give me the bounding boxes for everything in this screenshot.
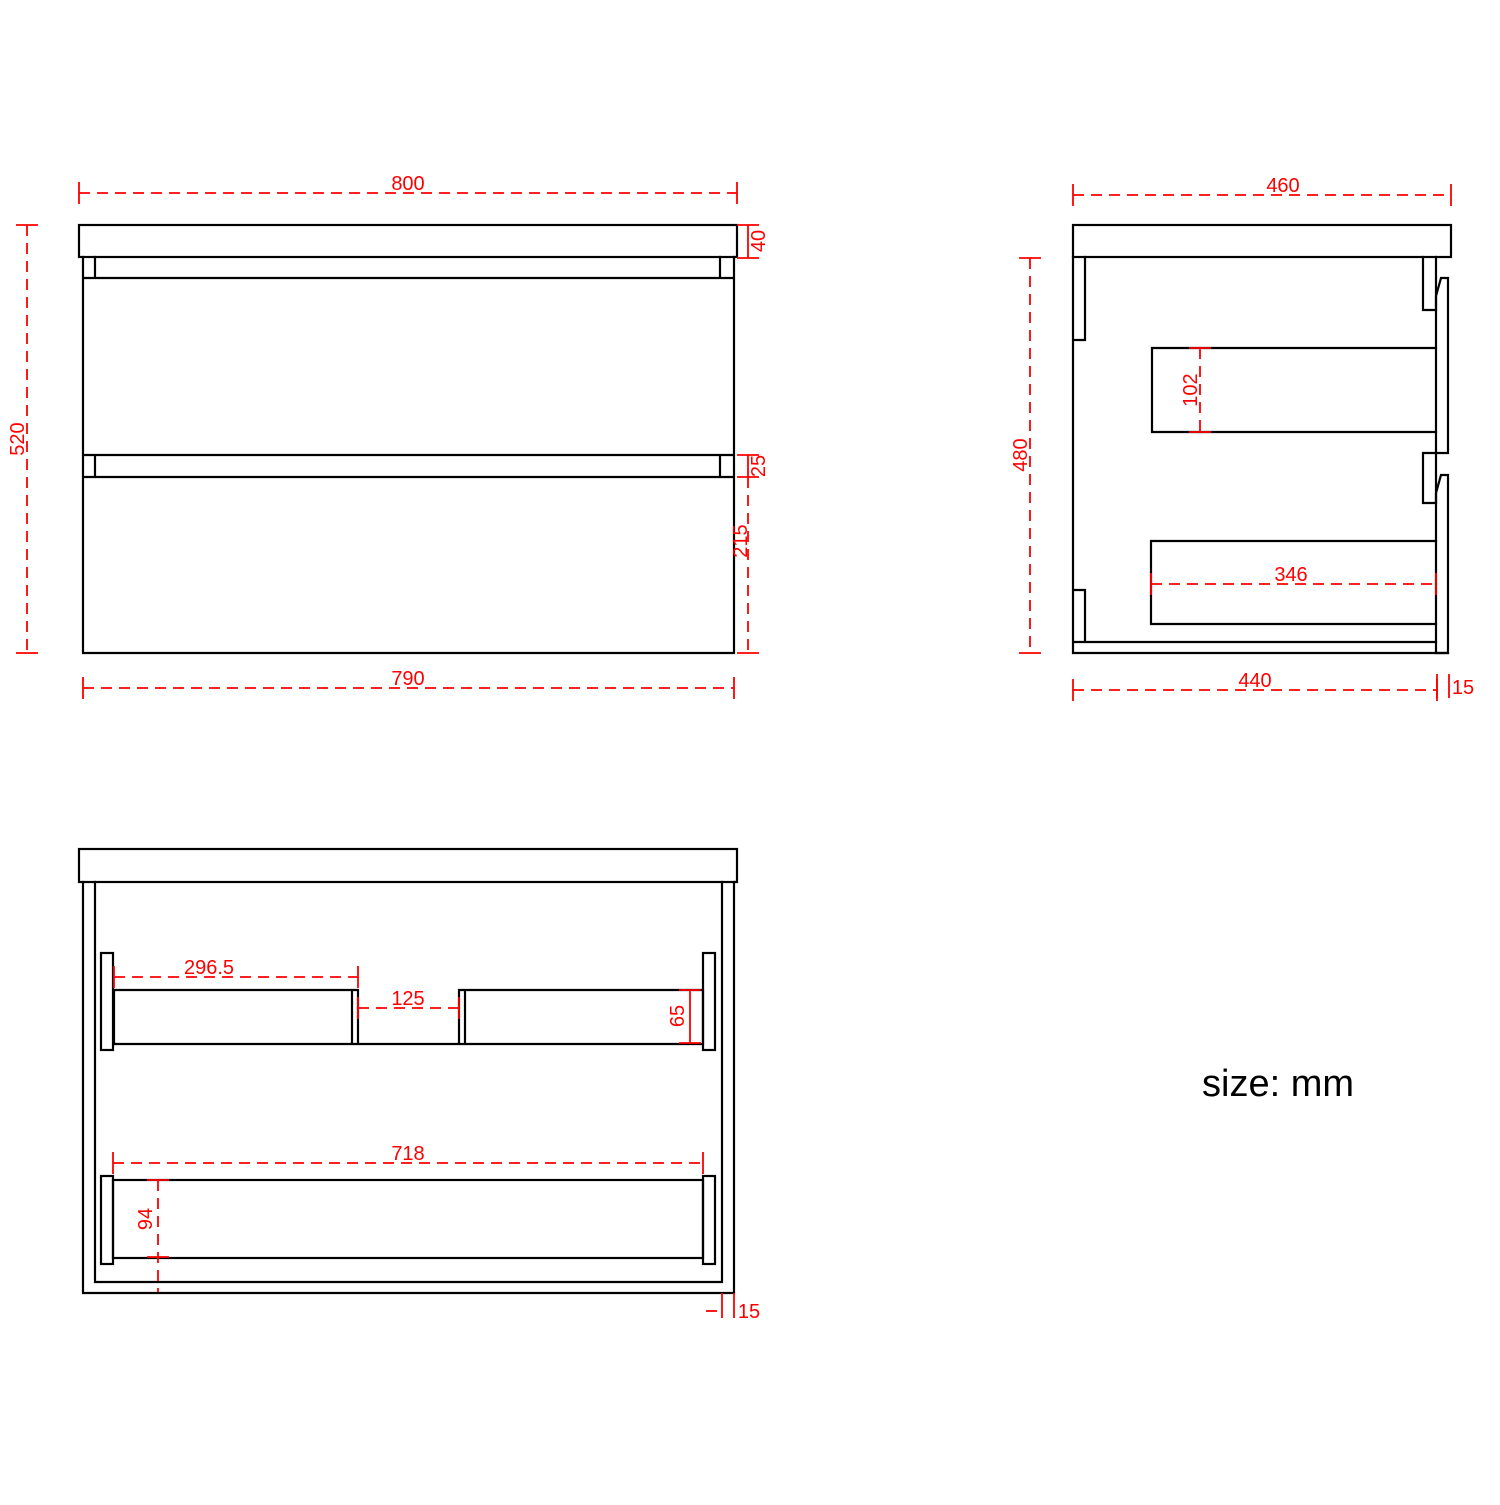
dim-label-bottom-plumbing-gap: 125 — [391, 988, 424, 1010]
dim-side-cabinet-height: 480 — [1010, 258, 1041, 653]
dim-label-front-cabinet-width: 790 — [391, 668, 424, 690]
units-note: size: mm — [1202, 1063, 1354, 1105]
dim-side-drawer-box-depth: 346 — [1151, 564, 1436, 595]
dim-bottom-panel-thickness: 15 — [706, 1293, 760, 1323]
side-view: 460 480 102 346 440 15 — [1010, 175, 1474, 701]
drawing-sheet: 800 520 40 25 215 790 — [0, 0, 1500, 1500]
dim-label-side-drawer-box-side-height: 102 — [1180, 373, 1202, 406]
side-countertop — [1073, 225, 1451, 257]
dim-side-drawer-box-side-height: 102 — [1180, 348, 1211, 432]
dim-side-front-panel-thickness: 15 — [1437, 674, 1474, 699]
bottom-runner-block-lower-left — [101, 1176, 113, 1264]
dim-label-front-top-thickness: 40 — [748, 230, 770, 252]
side-drawer-front-lower — [1436, 475, 1448, 653]
bottom-view: 296.5 125 65 718 94 15 — [79, 849, 760, 1323]
dim-side-cabinet-depth: 440 — [1073, 670, 1437, 701]
side-drawer-front-upper — [1436, 278, 1448, 453]
dim-label-bottom-back-rail-depth: 65 — [667, 1005, 689, 1027]
bottom-runner-block-upper-left — [101, 953, 113, 1050]
front-cabinet-outline — [83, 257, 734, 653]
bottom-back-rail-lower — [113, 1180, 703, 1258]
dim-label-front-overall-width: 800 — [391, 173, 424, 195]
dim-label-front-lower-drawer-height: 215 — [730, 524, 752, 557]
dim-front-top-thickness: 40 — [737, 225, 770, 258]
dim-label-side-cabinet-height: 480 — [1010, 438, 1032, 471]
dim-front-overall-width: 800 — [79, 173, 737, 204]
dim-label-side-front-panel-thickness: 15 — [1452, 677, 1474, 699]
side-cabinet-outline — [1073, 257, 1448, 653]
bottom-runner-block-lower-right — [703, 1176, 715, 1264]
front-view: 800 520 40 25 215 790 — [7, 173, 770, 699]
dim-bottom-back-rail-depth: 65 — [667, 990, 701, 1043]
bottom-cabinet-walls — [83, 882, 734, 1293]
dim-label-front-overall-height: 520 — [7, 422, 29, 455]
dim-bottom-lower-rail-width: 718 — [113, 1143, 703, 1174]
dim-front-overall-height: 520 — [7, 225, 38, 653]
technical-drawing: 800 520 40 25 215 790 — [0, 0, 1500, 1500]
front-countertop — [79, 225, 737, 257]
dim-side-top-depth: 460 — [1073, 175, 1451, 206]
dim-label-side-top-depth: 460 — [1266, 175, 1299, 197]
dim-label-bottom-panel-thickness: 15 — [738, 1301, 760, 1323]
dim-front-drawer-gap: 25 — [737, 455, 770, 477]
bottom-countertop-edge — [79, 849, 737, 882]
bottom-runner-block-upper-right — [703, 953, 715, 1050]
dim-bottom-left-rail-width: 296.5 — [114, 957, 358, 988]
dim-label-bottom-left-rail-width: 296.5 — [184, 957, 234, 979]
dim-bottom-plumbing-gap: 125 — [358, 988, 459, 1019]
dim-bottom-lower-rail-depth: 94 — [135, 1180, 169, 1292]
dim-front-cabinet-width: 790 — [83, 668, 734, 699]
dim-label-bottom-lower-rail-depth: 94 — [135, 1208, 157, 1230]
dim-label-side-cabinet-depth: 440 — [1238, 670, 1271, 692]
dim-label-front-drawer-gap: 25 — [748, 455, 770, 477]
dim-label-bottom-lower-rail-width: 718 — [391, 1143, 424, 1165]
dim-label-side-drawer-box-depth: 346 — [1274, 564, 1307, 586]
